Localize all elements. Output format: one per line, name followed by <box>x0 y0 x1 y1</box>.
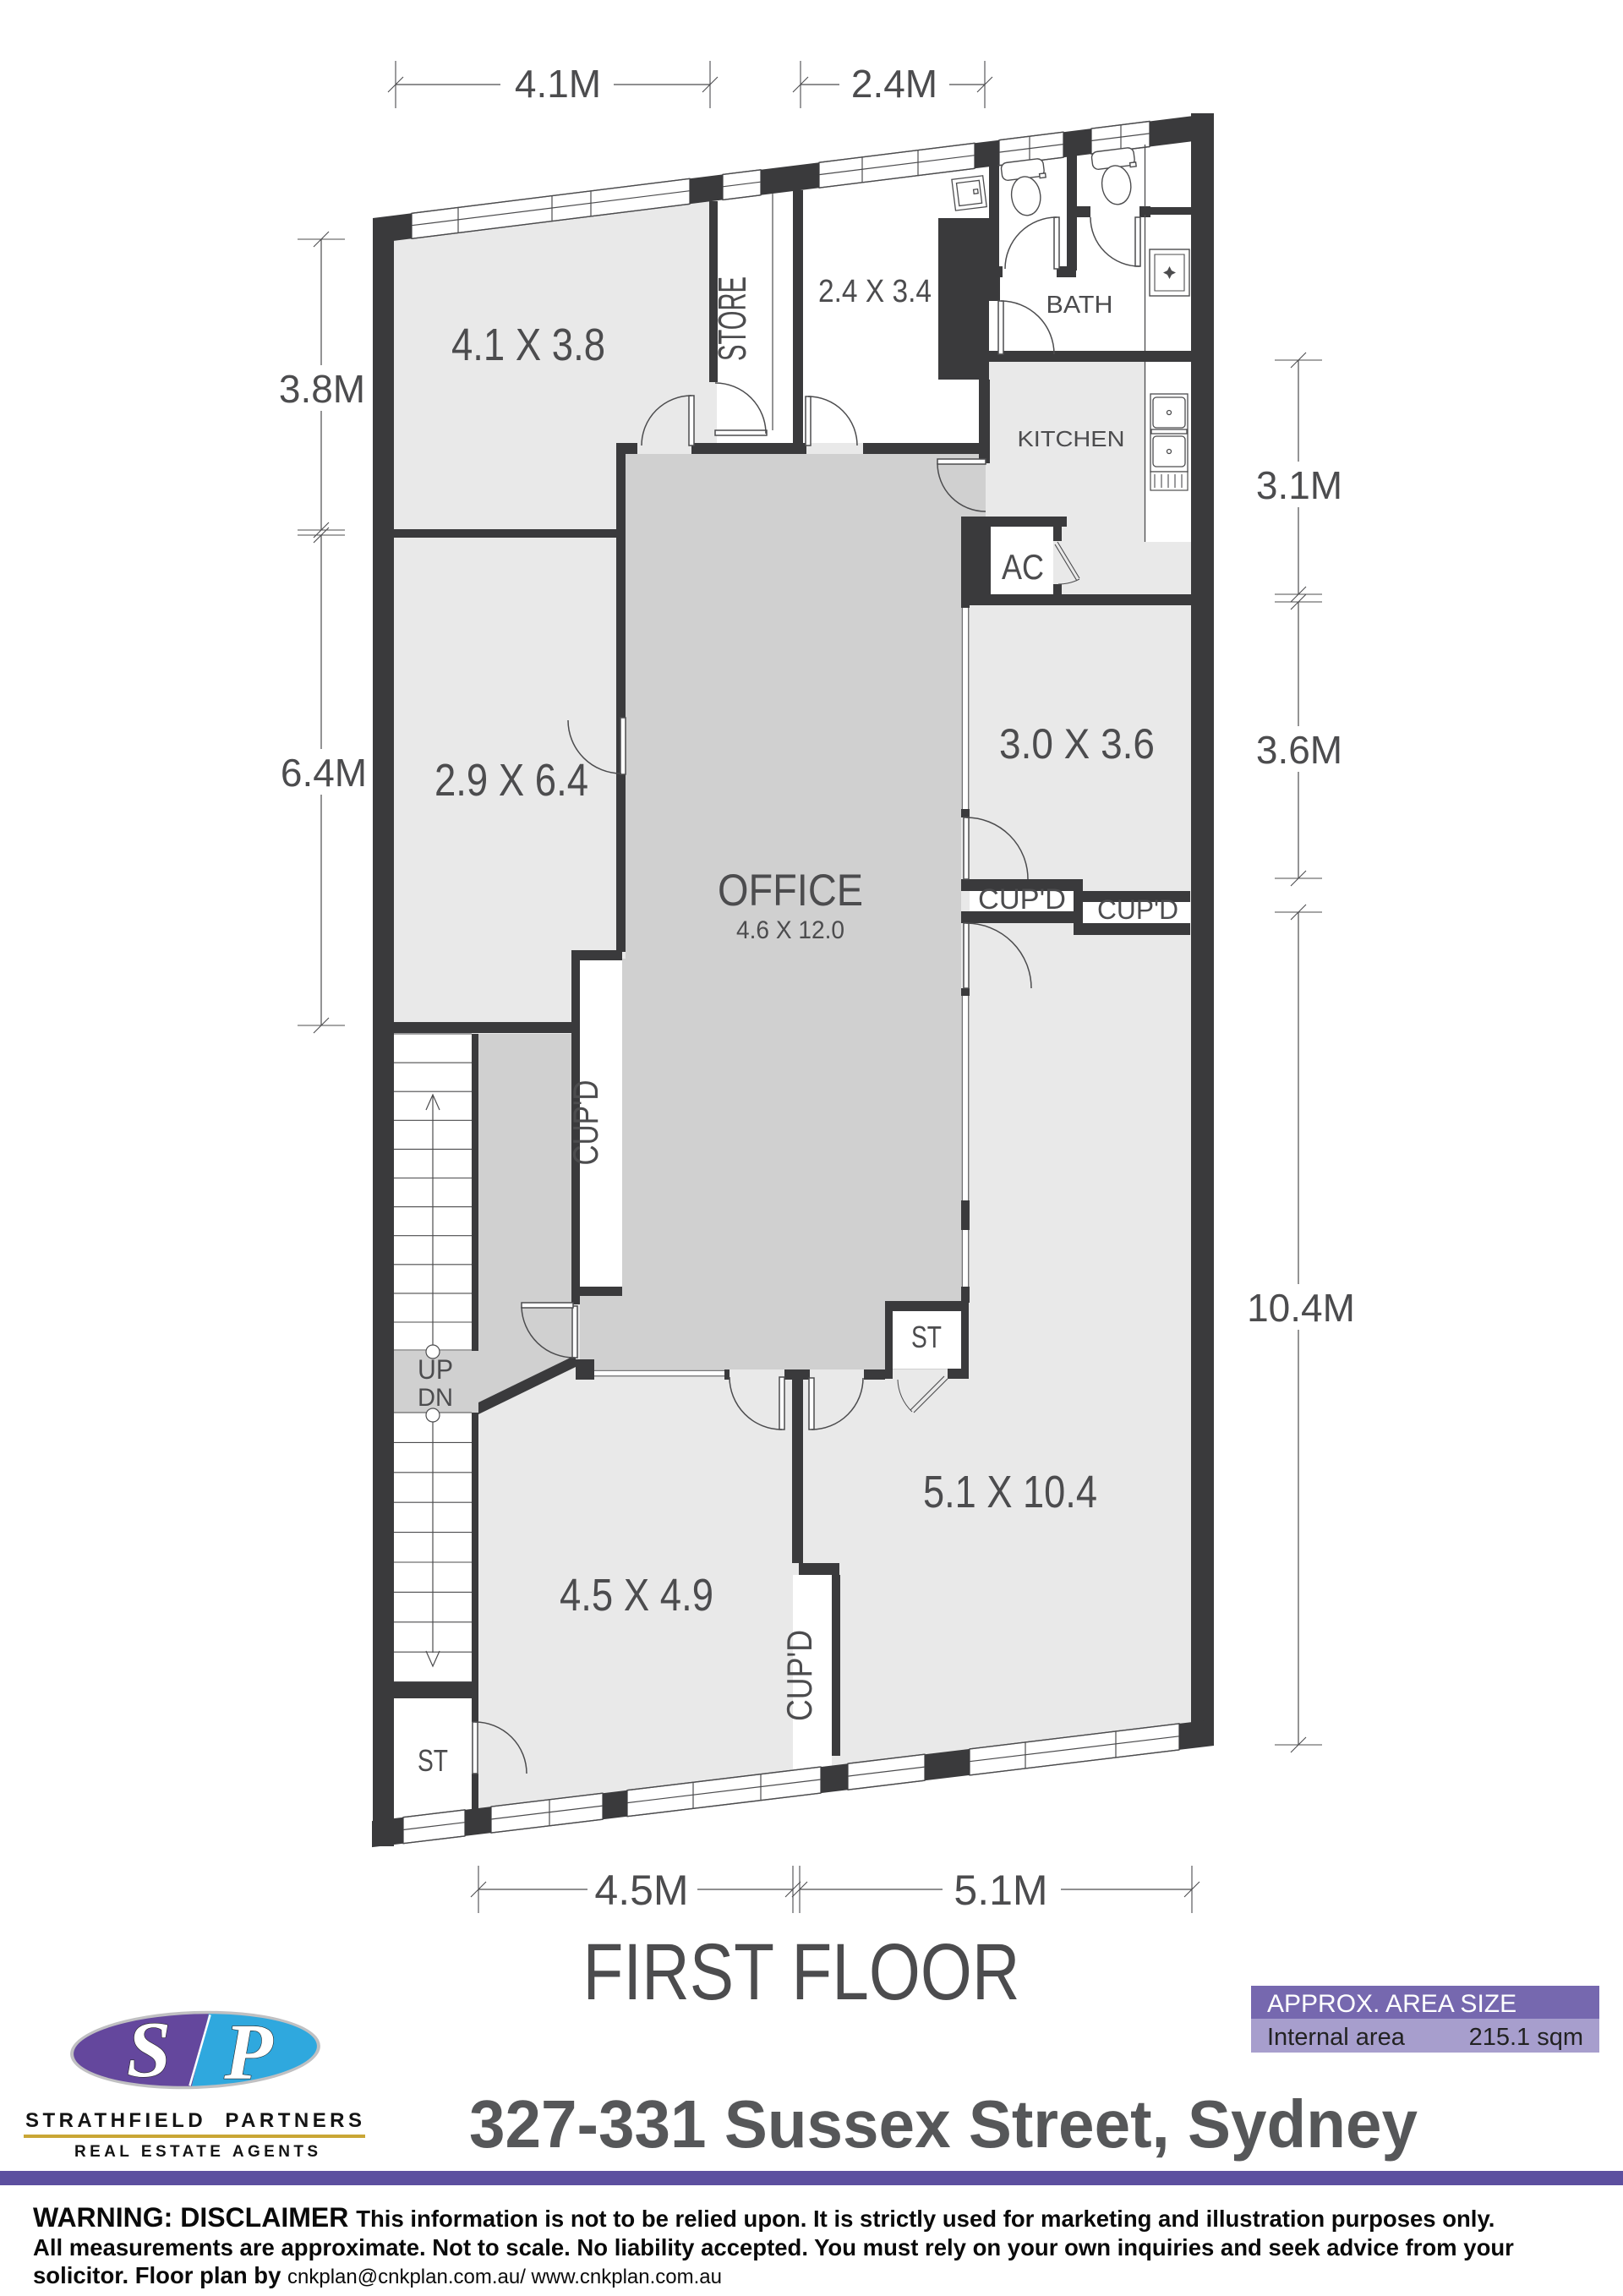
svg-text:ST: ST <box>911 1320 942 1354</box>
svg-text:S: S <box>127 2006 171 2094</box>
svg-text:5.1 X 10.4: 5.1 X 10.4 <box>923 1467 1097 1517</box>
svg-text:327-331 Sussex Street, Sydney: 327-331 Sussex Street, Sydney <box>469 2086 1418 2162</box>
svg-text:4.6 X 12.0: 4.6 X 12.0 <box>736 916 844 944</box>
svg-text:ST: ST <box>418 1743 448 1778</box>
svg-text:UP: UP <box>418 1354 453 1385</box>
svg-text:solicitor. Floor plan by cnkpl: solicitor. Floor plan by cnkplan@cnkplan… <box>33 2262 722 2288</box>
svg-text:All measurements are approxima: All measurements are approximate. Not to… <box>33 2234 1514 2260</box>
svg-text:3.1M: 3.1M <box>1256 463 1342 507</box>
svg-text:APPROX. AREA SIZE: APPROX. AREA SIZE <box>1267 1990 1516 2018</box>
svg-text:P: P <box>223 2009 274 2096</box>
svg-text:2.4 X 3.4: 2.4 X 3.4 <box>818 274 932 309</box>
svg-text:FIRST FLOOR: FIRST FLOOR <box>583 1927 1020 2017</box>
svg-text:CUP'D: CUP'D <box>1097 894 1178 925</box>
svg-text:215.1 sqm: 215.1 sqm <box>1469 2024 1583 2051</box>
svg-text:3.0 X 3.6: 3.0 X 3.6 <box>999 720 1155 768</box>
svg-text:Internal area: Internal area <box>1267 2024 1406 2051</box>
svg-text:10.4M: 10.4M <box>1247 1286 1355 1330</box>
svg-text:3.8M: 3.8M <box>279 367 365 411</box>
svg-text:6.4M: 6.4M <box>281 751 367 795</box>
svg-text:KITCHEN: KITCHEN <box>1018 426 1125 451</box>
svg-text:4.5M: 4.5M <box>594 1867 688 1914</box>
svg-text:REAL ESTATE AGENTS: REAL ESTATE AGENTS <box>74 2143 318 2161</box>
svg-text:3.6M: 3.6M <box>1256 728 1342 772</box>
svg-text:STORE: STORE <box>710 276 754 361</box>
svg-text:2.4M: 2.4M <box>851 62 937 106</box>
svg-text:2.9 X 6.4: 2.9 X 6.4 <box>434 755 588 806</box>
svg-text:BATH: BATH <box>1046 292 1113 319</box>
svg-text:CUP'D: CUP'D <box>566 1080 605 1166</box>
svg-text:4.1M: 4.1M <box>515 62 601 106</box>
svg-text:DN: DN <box>418 1384 453 1412</box>
svg-text:CUP'D: CUP'D <box>978 883 1066 916</box>
svg-text:5.1M: 5.1M <box>954 1867 1047 1914</box>
svg-text:4.1 X 3.8: 4.1 X 3.8 <box>451 320 605 370</box>
svg-text:AC: AC <box>1002 547 1044 587</box>
svg-text:WARNING: DISCLAIMER This infor: WARNING: DISCLAIMER This information is … <box>33 2202 1495 2233</box>
svg-text:OFFICE: OFFICE <box>718 866 863 916</box>
svg-text:4.5 X 4.9: 4.5 X 4.9 <box>560 1570 713 1621</box>
svg-text:CUP'D: CUP'D <box>779 1630 819 1721</box>
